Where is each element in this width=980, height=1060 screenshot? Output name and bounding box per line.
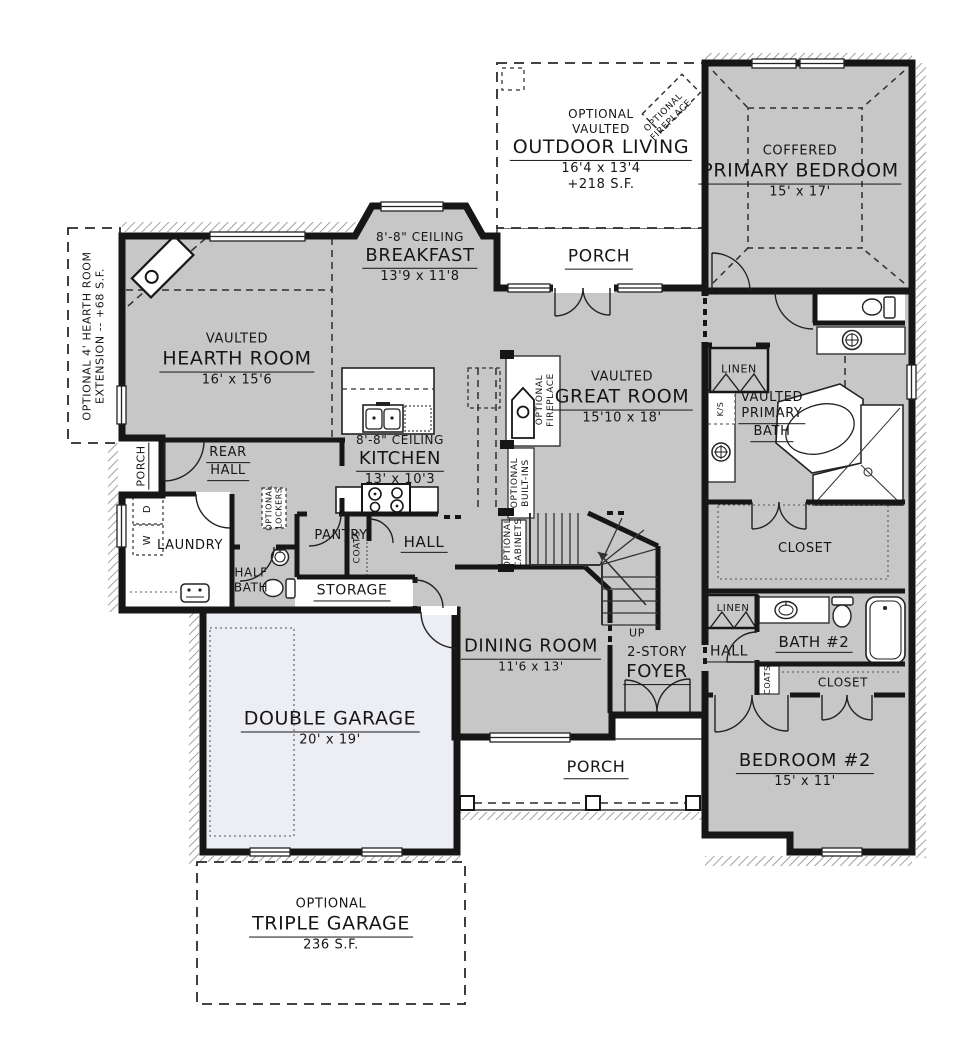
room-label-rear-hall: REAR HALL (206, 445, 250, 481)
utility-sink-icon (181, 584, 209, 602)
window (210, 232, 305, 241)
label-optional-lockers: OPTIONAL LOCKERS (264, 485, 284, 530)
window (800, 59, 844, 68)
room-label-foyer: 2-STORY FOYER (623, 645, 690, 685)
window (752, 59, 796, 68)
label-coats-bedroom: COATS (763, 665, 773, 695)
room-label-primary-bath: VAULTED PRIMARY BATH (738, 390, 805, 442)
room-label-bath2: BATH #2 (776, 633, 853, 653)
kitchen-island (342, 368, 434, 434)
room-label-rear-porch: PORCH (565, 247, 633, 270)
water-closet (817, 293, 905, 323)
label-optional-cabinets: OPTIONAL CABINETS (503, 518, 525, 568)
label-stairs-up: UP (629, 626, 645, 639)
garage-door (362, 848, 402, 856)
room-label-breakfast: 8'-8" CEILING BREAKFAST 13'9 x 11'8 (362, 230, 477, 284)
room-label-dining-room: DINING ROOM 11'6 x 13' (461, 636, 601, 675)
room-label-hall-main: HALL (401, 533, 448, 553)
label-closet2: CLOSET (818, 676, 868, 691)
room-label-laundry: LAUNDRY (157, 538, 223, 554)
door-opening (421, 606, 457, 615)
toilet-tank (884, 297, 895, 318)
label-optional-builtins: OPTIONAL BUILT-INS (510, 458, 532, 508)
room-label-primary-closet: CLOSET (778, 541, 832, 557)
garage-door (250, 848, 290, 856)
room-label-great-room: VAULTED GREAT ROOM 15'10 x 18' (552, 370, 693, 427)
label-hearth-extension: OPTIONAL 4' HEARTH ROOM EXTENSION -- +68… (81, 251, 108, 420)
room-label-side-porch: PORCH (134, 442, 149, 489)
primary-sink-icon (712, 443, 730, 461)
room-label-hearth-room: VAULTED HEARTH ROOM 16' x 15'6 (159, 332, 314, 389)
room-label-bedroom2: BEDROOM #2 15' x 11' (736, 750, 874, 790)
label-dryer: D (142, 505, 154, 513)
room-label-front-porch: PORCH (564, 757, 629, 779)
window (907, 365, 916, 399)
label-knee-space: K/S (716, 402, 726, 417)
room-label-half-bath: HALF BATH (234, 565, 268, 594)
window (508, 284, 550, 292)
bath2-tub-icon (866, 597, 905, 663)
room-label-storage: STORAGE (314, 582, 391, 601)
label-linen-primary: LINEN (721, 362, 757, 375)
room-label-triple-garage: OPTIONAL TRIPLE GARAGE 236 S.F. (249, 897, 413, 954)
window (490, 733, 570, 742)
window (381, 202, 443, 211)
room-label-hall-bedroom: HALL (707, 643, 751, 662)
window (117, 386, 126, 424)
room-label-kitchen: 8'-8" CEILING KITCHEN 13' x 10'3 (356, 433, 444, 487)
room-label-double-garage: DOUBLE GARAGE 20' x 19' (241, 707, 420, 748)
floor-plan: OPTIONAL VAULTED OUTDOOR LIVING 16'4 x 1… (0, 0, 980, 1060)
label-linen-hall: LINEN (717, 603, 750, 615)
primary-vanity-2 (817, 327, 905, 354)
double-sink-icon (363, 402, 403, 432)
window (117, 505, 126, 547)
label-washer: W (142, 535, 154, 546)
toilet-icon (863, 299, 882, 315)
bath2-vanity (759, 597, 829, 623)
range-icon (336, 484, 438, 515)
window (822, 848, 862, 856)
bath2-toilet-icon (832, 597, 853, 627)
room-label-primary-bedroom: COFFERED PRIMARY BEDROOM 15' x 17' (698, 144, 901, 201)
window (618, 284, 662, 292)
label-coats-main: COATS (353, 531, 364, 564)
label-optional-fireplace: OPTIONAL FIREPLACE (535, 373, 557, 427)
